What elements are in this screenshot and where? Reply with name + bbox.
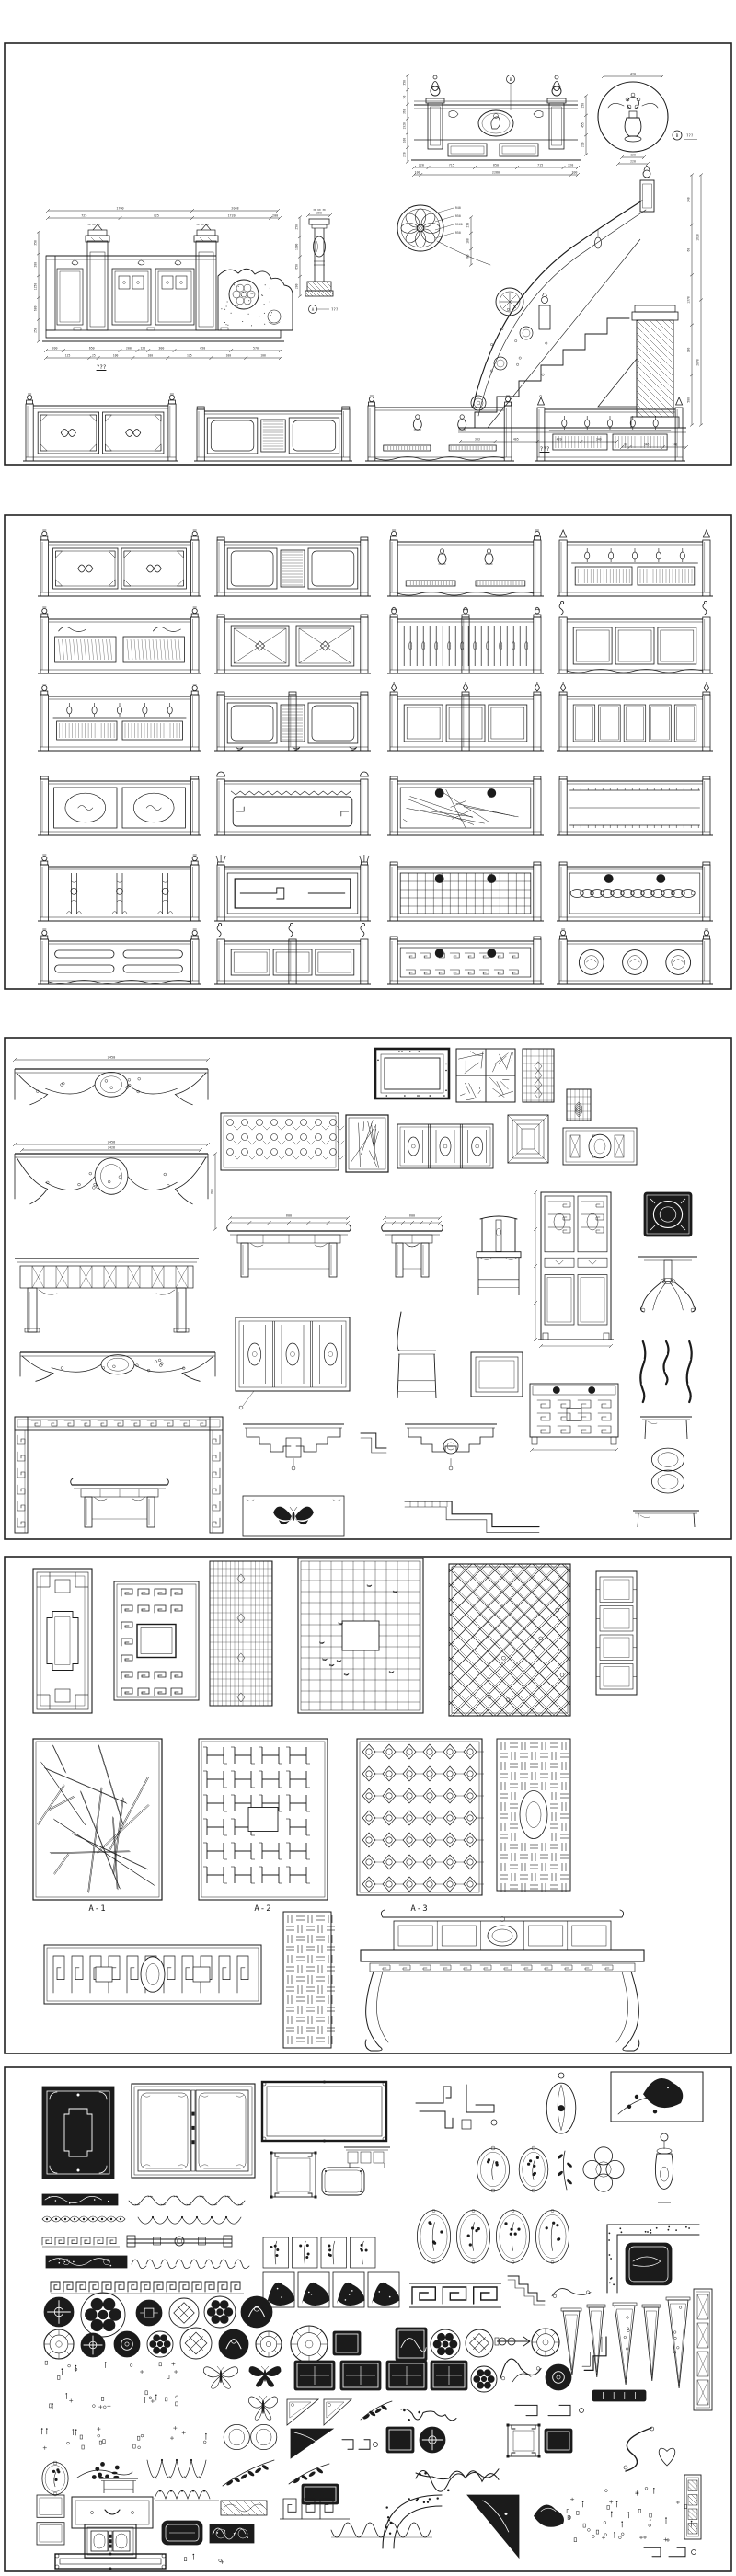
page: B220715650715220100228010035050360192010… bbox=[5, 43, 731, 2571]
lattice-drawing bbox=[596, 1571, 637, 1695]
rail-drawing bbox=[38, 530, 201, 596]
plate-drawing bbox=[294, 2361, 335, 2390]
svg-text:100: 100 bbox=[226, 354, 232, 358]
svg-text:230: 230 bbox=[581, 142, 584, 147]
svg-text:240: 240 bbox=[673, 443, 678, 447]
rail-drawing bbox=[38, 776, 201, 835]
bits-drawing bbox=[184, 2554, 224, 2564]
heart-drawing bbox=[659, 2448, 675, 2466]
stone-railing-construction-details: B220715650715220100228010035050360192010… bbox=[5, 43, 731, 465]
plate-drawing bbox=[396, 2328, 427, 2361]
medallion-drawing bbox=[180, 2328, 212, 2359]
sealSquare-drawing bbox=[644, 1192, 692, 1236]
left-elevation-caption: ??? bbox=[64, 364, 138, 371]
svg-text:650: 650 bbox=[294, 264, 298, 270]
plate-drawing bbox=[386, 2361, 427, 2390]
arrowKey-drawing bbox=[495, 2337, 530, 2346]
svg-text:100: 100 bbox=[466, 238, 469, 244]
svg-text:R40: R40 bbox=[455, 206, 461, 210]
fang-drawing bbox=[666, 2297, 690, 2388]
squiggle-drawing bbox=[401, 2409, 456, 2421]
lattice-drawing bbox=[33, 1569, 92, 1713]
rail-drawing bbox=[38, 607, 201, 673]
svg-text:30 60 30: 30 60 30 bbox=[196, 223, 209, 226]
svg-text:650: 650 bbox=[493, 164, 499, 167]
fang-drawing bbox=[642, 2305, 661, 2381]
svg-text:1100: 1100 bbox=[294, 243, 298, 250]
svg-text:715: 715 bbox=[537, 164, 543, 167]
svg-text:2450: 2450 bbox=[108, 1056, 116, 1060]
plate-drawing bbox=[386, 2427, 414, 2453]
medallion-drawing bbox=[471, 2366, 497, 2392]
lintelSmall-drawing bbox=[405, 1424, 497, 1470]
rail-drawing bbox=[194, 407, 352, 461]
rail-drawing bbox=[557, 682, 713, 751]
stair-drawing: 3334054203408034624024060137038050016202… bbox=[458, 167, 703, 450]
medallion-drawing bbox=[44, 2297, 74, 2327]
medallion-drawing bbox=[44, 2329, 74, 2359]
svg-text:125: 125 bbox=[187, 354, 192, 358]
svg-text:680: 680 bbox=[33, 305, 37, 311]
leafPendant-drawing bbox=[546, 2073, 576, 2133]
birdPanel-drawing bbox=[611, 2072, 703, 2122]
svg-text:200: 200 bbox=[126, 347, 132, 351]
svg-text:380: 380 bbox=[686, 347, 690, 352]
lattice-drawing bbox=[523, 1049, 554, 1102]
rosette-drawing: R40R50R160R50230100300 bbox=[397, 205, 490, 267]
svg-text:R50: R50 bbox=[455, 214, 461, 218]
svg-text:2428: 2428 bbox=[108, 1146, 115, 1150]
quatrefoil-drawing bbox=[583, 2147, 624, 2191]
bits-drawing bbox=[41, 2426, 207, 2450]
stripDark-drawing bbox=[210, 2524, 254, 2543]
bits-drawing bbox=[567, 2487, 692, 2542]
svg-text:200: 200 bbox=[272, 214, 278, 218]
svg-text:200: 200 bbox=[52, 347, 58, 351]
ornamentsVert-drawing bbox=[640, 1341, 691, 1402]
rail-drawing bbox=[38, 684, 201, 751]
svg-text:1700: 1700 bbox=[116, 207, 123, 211]
medallion-drawing bbox=[114, 2331, 140, 2357]
latticeTable-drawing bbox=[236, 1317, 350, 1409]
svg-text:220: 220 bbox=[568, 164, 573, 167]
svg-text:350: 350 bbox=[33, 240, 37, 246]
lattice-drawing bbox=[44, 1945, 261, 2004]
smallBird-drawing bbox=[534, 2504, 564, 2526]
svg-text:2048: 2048 bbox=[231, 207, 238, 211]
tableAltar-drawing: 600 bbox=[227, 1214, 351, 1277]
lattice-drawing bbox=[283, 1912, 335, 2048]
svg-text:2870: 2870 bbox=[696, 359, 699, 366]
svg-text:60: 60 bbox=[686, 248, 690, 252]
balusterDetail-drawing: 30 60 302602501100650200A??? bbox=[294, 208, 338, 314]
lattice-window-designs bbox=[5, 1557, 731, 2053]
svg-text:B: B bbox=[676, 133, 679, 138]
curl-drawing bbox=[552, 2289, 591, 2298]
floral-drawing bbox=[77, 2462, 132, 2479]
svg-text:100: 100 bbox=[260, 354, 266, 358]
butterfly-drawing bbox=[249, 2396, 278, 2420]
lintel-drawing: 2450 bbox=[13, 1056, 210, 1105]
rail-drawing bbox=[23, 394, 178, 461]
doorFrame-drawing bbox=[15, 1417, 223, 1533]
lintel-drawing: 24582428600 bbox=[13, 1141, 217, 1231]
rail-drawing bbox=[557, 929, 713, 984]
panelU-drawing bbox=[72, 2497, 153, 2528]
svg-text:2458: 2458 bbox=[108, 1141, 116, 1144]
svg-text:220: 220 bbox=[419, 164, 424, 167]
svg-text:100: 100 bbox=[113, 354, 119, 358]
medallion-drawing bbox=[81, 2293, 125, 2337]
spray-drawing bbox=[361, 2401, 392, 2421]
svg-text:1370: 1370 bbox=[686, 296, 690, 304]
svg-text:A: A bbox=[312, 307, 315, 312]
lattice-drawing bbox=[221, 1113, 344, 1170]
svg-text:100: 100 bbox=[571, 171, 577, 175]
rail-drawing bbox=[557, 601, 713, 673]
keyCluster-drawing bbox=[416, 2085, 497, 2129]
medallion-drawing bbox=[546, 2364, 571, 2390]
kangTable-drawing bbox=[361, 1910, 644, 2051]
furniture-and-carved-panel-drawings: 245024582428600600600 bbox=[5, 1038, 731, 1539]
svg-text:250: 250 bbox=[294, 224, 298, 230]
svg-text:650: 650 bbox=[200, 347, 205, 351]
darkRoundedSq-drawing bbox=[162, 2521, 202, 2545]
hooks-drawing bbox=[515, 2405, 584, 2415]
medallion-drawing bbox=[420, 2427, 445, 2453]
bits-drawing bbox=[50, 2391, 178, 2409]
svg-text:100: 100 bbox=[415, 171, 420, 175]
tri-drawing bbox=[287, 2399, 318, 2425]
svg-text:125: 125 bbox=[65, 354, 71, 358]
medallion-drawing bbox=[466, 2329, 493, 2357]
lintelSmall-drawing bbox=[243, 1424, 344, 1470]
stair-section-caption: ??? bbox=[517, 446, 572, 453]
svg-text:360: 360 bbox=[402, 109, 406, 114]
ornateFrame-drawing bbox=[375, 1049, 449, 1098]
svg-text:240: 240 bbox=[686, 197, 690, 202]
stripScroll-drawing bbox=[132, 2260, 249, 2269]
lattice-drawing bbox=[114, 1581, 199, 1700]
bits-drawing bbox=[45, 2361, 178, 2379]
cabinetTall-drawing bbox=[534, 1190, 614, 1348]
keyCorner-drawing bbox=[405, 1501, 539, 1533]
svg-text:50: 50 bbox=[402, 96, 406, 99]
rail-drawing bbox=[214, 855, 371, 921]
svg-text:600: 600 bbox=[286, 1214, 292, 1218]
svg-text:200: 200 bbox=[33, 262, 37, 268]
rail-drawing bbox=[387, 776, 544, 835]
rail-drawing bbox=[214, 692, 371, 751]
svg-text:600: 600 bbox=[210, 1189, 213, 1194]
hooks-drawing bbox=[644, 2547, 696, 2557]
lattice-drawing bbox=[508, 1115, 548, 1163]
cad-drawing-canvas: B220715650715220100228010035050360192010… bbox=[0, 0, 736, 2576]
detailCircle-drawing: 420120220B??? bbox=[598, 73, 697, 166]
smallFrames-drawing bbox=[37, 2495, 64, 2545]
svg-text:600: 600 bbox=[409, 1214, 415, 1218]
plaque-drawing bbox=[55, 2553, 166, 2570]
sprayV-drawing bbox=[557, 2151, 572, 2190]
rail-drawing bbox=[557, 776, 713, 835]
medallion-drawing bbox=[219, 2329, 248, 2359]
svg-text:120: 120 bbox=[630, 154, 636, 157]
rail-drawing bbox=[38, 855, 201, 921]
waveStrip-drawing bbox=[331, 2523, 432, 2537]
svg-text:125: 125 bbox=[140, 347, 145, 351]
plate-drawing bbox=[340, 2361, 381, 2390]
svg-text:B: B bbox=[510, 77, 512, 82]
keySquare-drawing bbox=[270, 2152, 317, 2199]
lattice-drawing bbox=[210, 1561, 272, 1706]
fang-drawing bbox=[613, 2303, 637, 2385]
cartouche-drawing bbox=[42, 2461, 68, 2496]
svg-text:80: 80 bbox=[624, 443, 627, 447]
svg-text:1250: 1250 bbox=[33, 283, 37, 291]
plaque-drawing bbox=[262, 2081, 386, 2143]
meanderPiece-drawing bbox=[280, 2499, 350, 2519]
medallion-drawing bbox=[147, 2331, 173, 2357]
cabinetSmall-drawing bbox=[530, 1384, 618, 1452]
elevLeft-drawing: 17002048725725172020030 60 3030 60 30350… bbox=[33, 207, 293, 360]
svg-text:???: ??? bbox=[686, 133, 694, 138]
svg-text:300: 300 bbox=[466, 254, 469, 259]
plantPlaques-drawing bbox=[263, 2237, 375, 2268]
elevTop-drawing: B220715650715220100228010035050360192010… bbox=[402, 75, 588, 178]
medallion-drawing bbox=[169, 2298, 199, 2328]
cornerFrame-drawing bbox=[607, 2225, 699, 2293]
svg-text:333: 333 bbox=[475, 438, 480, 442]
svg-text:715: 715 bbox=[449, 164, 454, 167]
svg-text:346: 346 bbox=[644, 443, 650, 447]
svg-text:420: 420 bbox=[557, 438, 562, 442]
stripLace-drawing bbox=[42, 2216, 125, 2222]
bench-drawing bbox=[640, 1417, 692, 1439]
butterfly-drawing bbox=[203, 2366, 237, 2388]
lattice-drawing bbox=[449, 1564, 570, 1716]
bench-drawing bbox=[633, 1511, 699, 1527]
rail-drawing bbox=[387, 862, 544, 921]
lattice-drawing bbox=[567, 1089, 591, 1121]
lattice-label-a3: A-3 bbox=[386, 1904, 453, 1914]
tri-drawing bbox=[291, 2429, 333, 2458]
rail-drawing bbox=[557, 530, 713, 596]
svg-text:300: 300 bbox=[158, 347, 164, 351]
medallion-drawing bbox=[136, 2300, 162, 2326]
hooks-drawing bbox=[342, 2440, 378, 2449]
lattice-label-a2: A-2 bbox=[230, 1904, 296, 1914]
lattice-drawing bbox=[199, 1739, 328, 1900]
lattice-drawing bbox=[563, 1128, 637, 1165]
svg-text:405: 405 bbox=[513, 438, 519, 442]
stripVine-drawing bbox=[129, 2196, 245, 2205]
rail-drawing bbox=[387, 530, 544, 596]
chairSide-drawing bbox=[397, 1312, 436, 1398]
gridWindow-drawing bbox=[456, 1049, 515, 1102]
cad-catalog-page: B220715650715220100228010035050360192010… bbox=[0, 0, 736, 2576]
mirror-drawing bbox=[471, 1352, 523, 1397]
spray-drawing bbox=[289, 2464, 329, 2484]
svg-text:R50: R50 bbox=[455, 231, 461, 235]
butterflyPanel-drawing bbox=[243, 1496, 344, 1536]
tri-drawing bbox=[324, 2399, 351, 2425]
stripBar-drawing bbox=[127, 2236, 232, 2247]
svg-text:455: 455 bbox=[581, 122, 584, 128]
chairFront-drawing bbox=[477, 1216, 521, 1295]
rail-drawing bbox=[214, 923, 371, 984]
lintel-drawing bbox=[20, 1352, 215, 1381]
pedestalTable-drawing bbox=[638, 1257, 697, 1312]
medallion-drawing bbox=[291, 2326, 328, 2363]
svg-text:420: 420 bbox=[630, 73, 636, 76]
lotusStrip-drawing bbox=[155, 2490, 219, 2501]
squiggle-drawing bbox=[416, 2469, 499, 2491]
vasePendant-drawing bbox=[655, 2133, 673, 2202]
rail-drawing bbox=[387, 682, 544, 751]
svg-text:220: 220 bbox=[402, 152, 406, 157]
svg-text:230: 230 bbox=[466, 223, 469, 228]
rail-drawing bbox=[557, 862, 713, 921]
svg-text:1720: 1720 bbox=[228, 214, 236, 218]
plate-drawing bbox=[431, 2361, 467, 2390]
svg-text:725: 725 bbox=[154, 214, 159, 218]
consoleLattice-drawing bbox=[15, 1259, 199, 1332]
medallion-drawing bbox=[81, 2333, 105, 2357]
stripDark-drawing bbox=[46, 2256, 127, 2268]
plate-drawing bbox=[333, 2331, 361, 2355]
ovalRings-drawing bbox=[224, 2424, 277, 2449]
dragonCorner-drawing bbox=[383, 2495, 442, 2548]
lattice-drawing bbox=[33, 1739, 162, 1900]
plantOvals-drawing bbox=[417, 2209, 569, 2263]
balustrade-design-catalog bbox=[5, 515, 731, 989]
tableAltar-drawing: 600 bbox=[382, 1214, 443, 1277]
svg-text:220: 220 bbox=[630, 160, 636, 164]
svg-text:200: 200 bbox=[294, 283, 298, 289]
svg-text:350: 350 bbox=[402, 80, 406, 86]
keyBorder-drawing bbox=[409, 2283, 501, 2307]
lattice-label-a1: A-1 bbox=[64, 1904, 131, 1914]
stripDark-drawing bbox=[42, 2194, 118, 2205]
doors-drawing bbox=[132, 2084, 255, 2178]
pier-drawing bbox=[694, 2289, 712, 2410]
svg-text:1620: 1620 bbox=[696, 234, 699, 241]
plate-drawing bbox=[545, 2429, 572, 2453]
butterfly-drawing bbox=[249, 2366, 281, 2386]
lattice-drawing bbox=[397, 1124, 493, 1168]
svg-text:650: 650 bbox=[89, 347, 95, 351]
carvedBar-drawing bbox=[221, 2501, 267, 2515]
rail-drawing bbox=[38, 929, 201, 984]
lattice-drawing bbox=[346, 1115, 388, 1172]
rail-drawing bbox=[387, 607, 544, 673]
svg-text:2280: 2280 bbox=[492, 171, 500, 175]
rail-drawing bbox=[214, 772, 371, 835]
svg-text:???: ??? bbox=[331, 307, 339, 312]
svg-text:100: 100 bbox=[148, 354, 154, 358]
svg-text:30 60 30: 30 60 30 bbox=[87, 223, 100, 226]
svg-text:250: 250 bbox=[33, 328, 37, 333]
medallion-drawing bbox=[241, 2296, 272, 2328]
rail-drawing bbox=[387, 937, 544, 984]
consoleBracket-drawing bbox=[344, 2147, 390, 2168]
garland-drawing bbox=[147, 2459, 206, 2478]
rail-drawing bbox=[214, 537, 371, 596]
curl-drawing bbox=[500, 2359, 541, 2382]
roundRect-drawing bbox=[322, 2168, 364, 2195]
lattice-drawing bbox=[497, 1739, 570, 1892]
sqPlants-drawing bbox=[263, 2272, 400, 2307]
ovalRings-drawing bbox=[651, 1448, 684, 1493]
carved-ornament-motif-library bbox=[5, 2067, 731, 2571]
svg-text:570: 570 bbox=[253, 347, 259, 351]
fang-drawing bbox=[561, 2308, 581, 2375]
svg-text:25: 25 bbox=[92, 354, 96, 358]
spray-drawing bbox=[223, 2460, 274, 2486]
svg-text:R160: R160 bbox=[455, 223, 463, 226]
sCurve-drawing bbox=[624, 2427, 654, 2471]
cartouche-drawing bbox=[477, 2146, 509, 2192]
panelDark-drawing bbox=[42, 2087, 114, 2179]
lattice-drawing bbox=[357, 1739, 484, 1895]
lattice-drawing bbox=[298, 1558, 423, 1713]
garland-drawing bbox=[138, 2216, 241, 2224]
svg-text:1920: 1920 bbox=[402, 122, 406, 130]
medallion-drawing bbox=[256, 2331, 282, 2357]
svg-text:500: 500 bbox=[686, 397, 690, 403]
rail-drawing bbox=[214, 615, 371, 673]
keySquare-drawing bbox=[507, 2424, 541, 2458]
medallion-drawing bbox=[431, 2329, 460, 2359]
medallion-drawing bbox=[532, 2329, 559, 2356]
cartouche-drawing bbox=[519, 2146, 548, 2192]
miniTable-drawing bbox=[99, 2478, 138, 2493]
svg-text:260: 260 bbox=[316, 212, 322, 215]
stripMeander-drawing bbox=[42, 2237, 120, 2247]
medallion-drawing bbox=[204, 2296, 236, 2328]
svg-text:100: 100 bbox=[402, 138, 406, 144]
cornerPiece-drawing bbox=[361, 1433, 386, 1453]
cornerDarkTri-drawing bbox=[467, 2495, 519, 2558]
darkBar-drawing bbox=[592, 2390, 646, 2401]
svg-text:725: 725 bbox=[81, 214, 86, 218]
stripMeander-drawing bbox=[51, 2282, 244, 2294]
stepCorner-drawing bbox=[508, 2276, 545, 2305]
svg-text:150: 150 bbox=[581, 103, 584, 109]
